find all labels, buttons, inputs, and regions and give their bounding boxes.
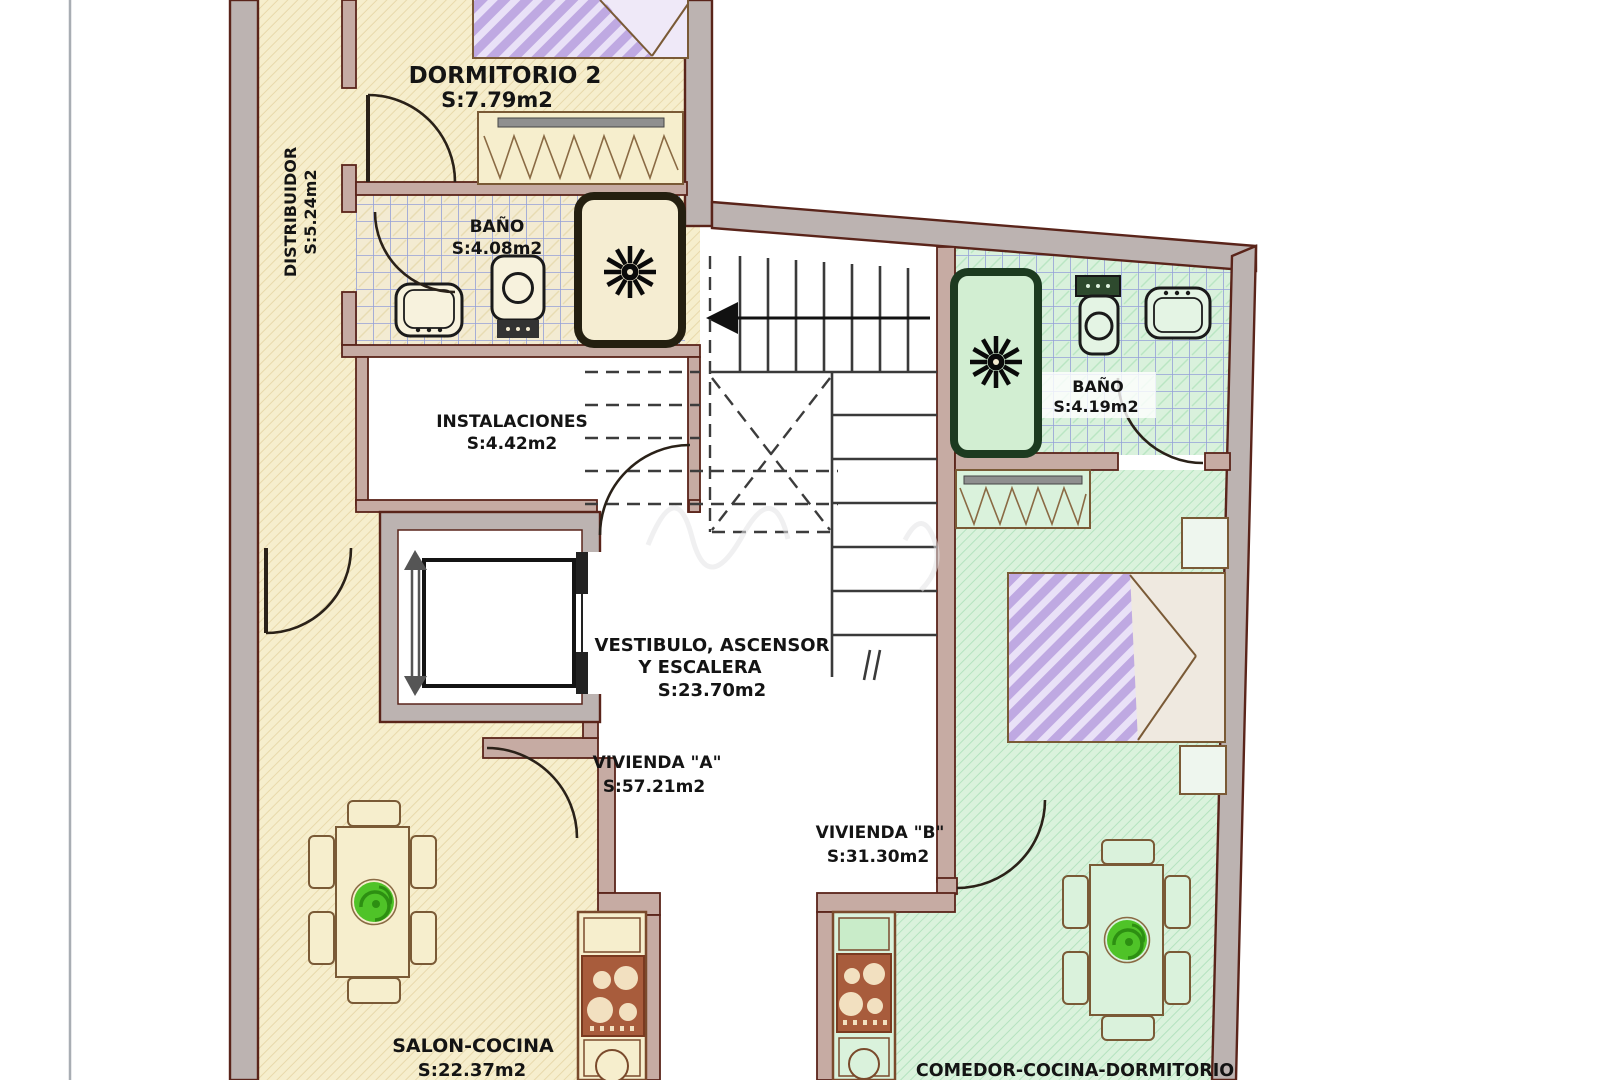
wall-instalaciones-w [356,357,368,505]
wall-pillar-a [583,722,598,738]
label-vestibulo-line2: Y ESCALERA [637,657,761,678]
kitchen-sink [849,1049,879,1079]
kitchen-counter-b [833,912,895,1080]
outer-wall-left [230,0,258,1080]
label-distribuidor-area: S:5.24m2 [301,169,320,254]
wardrobe-rail [498,118,664,127]
chair [348,801,400,826]
toilet [492,256,544,320]
kitchen-counter-a [578,912,646,1080]
label-salon-cocina-area: S:22.37m2 [418,1060,526,1080]
label-vivienda-b-area: S:31.30m2 [827,847,929,867]
chair [1063,952,1088,1004]
elevator-cabin [424,560,574,686]
label-vestibulo-area: S:23.70m2 [658,680,766,701]
wall-entry-b [817,893,955,912]
label-vivienda-b-name: VIVIENDA "B" [816,823,945,843]
wall-bano-b-s2 [1205,453,1230,470]
label-dormitorio2-name: DORMITORIO 2 [409,63,602,89]
label-bano-a-name: BAÑO [470,214,525,237]
chair [411,912,436,964]
label-vivienda-a-name: VIVIENDA "A" [593,753,722,773]
wardrobe-rail [964,476,1082,484]
wall-instalaciones-e [688,357,700,512]
stove [582,956,644,1036]
chair [309,912,334,964]
label-bano-a-area: S:4.08m2 [452,239,543,259]
chair [348,978,400,1003]
wall-corridor-1 [342,0,356,88]
elevator-door-jamb [576,652,588,694]
label-bano-b-name: BAÑO [1072,377,1124,396]
outer-wall-top-left-block [685,0,712,226]
wall-corridor-3 [342,292,356,345]
wall-instalaciones-s1 [356,500,597,512]
label-salon-cocina-name: SALON-COCINA [392,1035,554,1057]
wall-corridor-2 [342,165,356,212]
wall-jamb-b [937,878,957,894]
floor-plan-page: DORMITORIO 2 S:7.79m2 DISTRIBUIDOR S:5.2… [0,0,1620,1080]
elevator [380,512,602,722]
chair [1165,952,1190,1004]
chair [411,836,436,888]
label-instalaciones-area: S:4.42m2 [467,434,558,454]
plant-icon [352,880,397,925]
label-instalaciones-name: INSTALACIONES [436,412,588,432]
chair [1165,876,1190,928]
label-dormitorio2-area: S:7.79m2 [441,88,553,112]
washbasin [1146,288,1210,338]
label-bano-b-area: S:4.19m2 [1053,397,1138,416]
nightstand [1180,746,1226,794]
elevator-door-jamb [576,552,588,594]
wall-vivienda-b-w [817,912,833,1080]
label-distribuidor-name: DISTRIBUIDOR [281,147,300,277]
bed-fold [1130,573,1225,742]
label-vestibulo-line1: VESTIBULO, ASCENSOR [595,635,830,656]
nightstand [1182,518,1228,568]
chair [1102,1016,1154,1040]
chair [1063,876,1088,928]
label-comedor-name: COMEDOR-COCINA-DORMITORIO [916,1061,1234,1080]
floor-plan-drawing: DORMITORIO 2 S:7.79m2 DISTRIBUIDOR S:5.2… [0,0,1620,1080]
wall-instalaciones-s2 [689,500,700,512]
kitchen-sink [596,1050,628,1080]
chair [1102,840,1154,864]
label-vivienda-a-area: S:57.21m2 [603,777,705,797]
chair [309,836,334,888]
plant-icon [1105,918,1150,963]
